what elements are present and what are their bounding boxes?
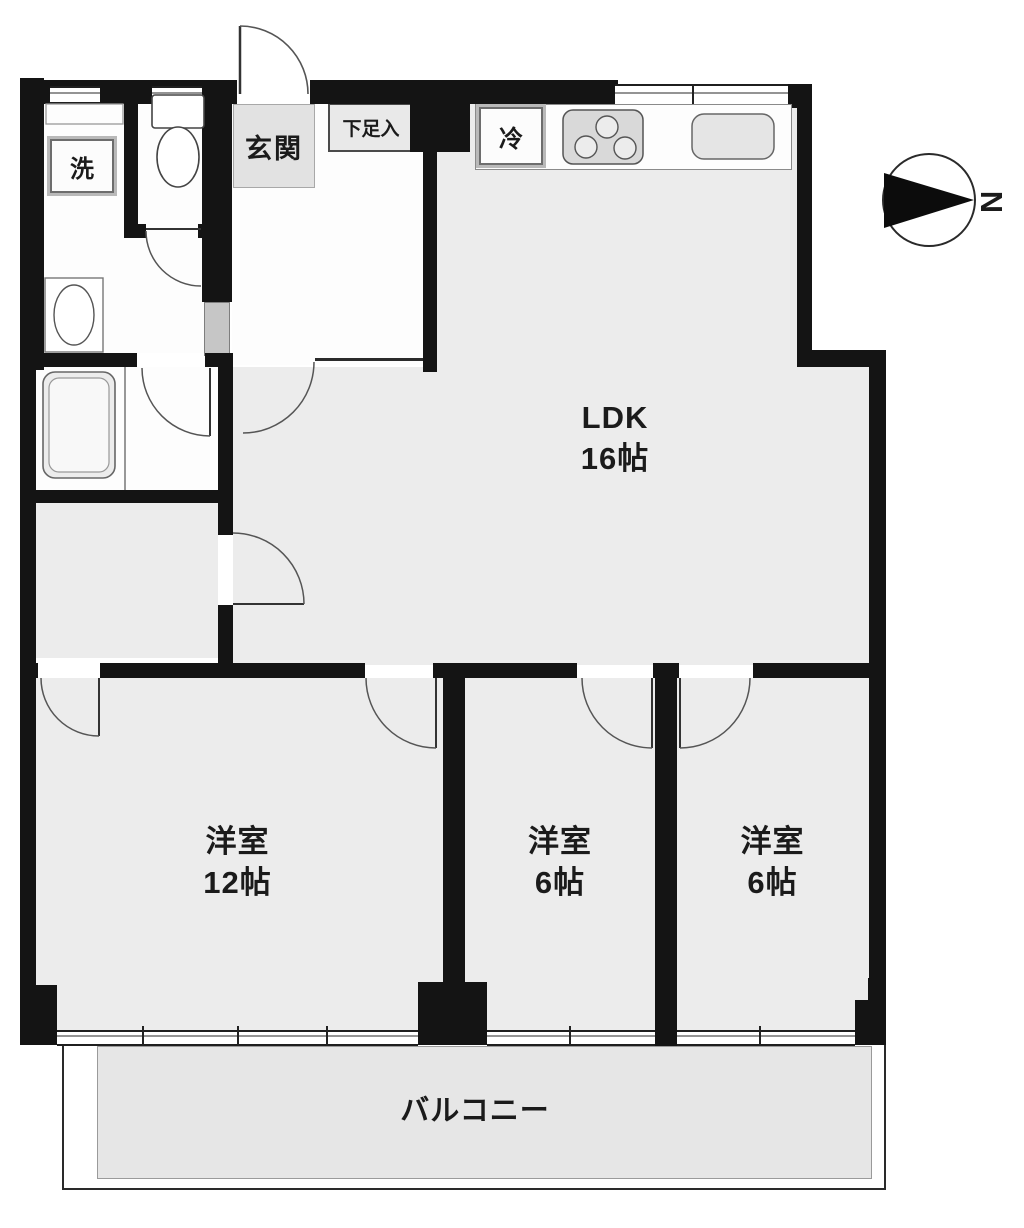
ldk-name: LDK bbox=[582, 400, 649, 435]
bedroom-6-right-label: 洋室 6帖 bbox=[685, 822, 860, 904]
bathroom-door-swing bbox=[142, 368, 210, 436]
bedroom-6-center-door-swing bbox=[582, 678, 652, 748]
ldk-label: LDK 16帖 bbox=[520, 398, 710, 480]
bedroom-6-right-name: 洋室 bbox=[741, 824, 805, 859]
plan-symbols bbox=[0, 0, 1024, 1228]
washroom-counter bbox=[46, 104, 123, 124]
balcony-label: バルコニー bbox=[320, 1092, 630, 1130]
toilet-door-swing bbox=[146, 229, 201, 286]
bedroom-6-center-label: 洋室 6帖 bbox=[475, 822, 645, 904]
hall-ldk-door-swing bbox=[243, 362, 314, 433]
compass-north-label: N bbox=[973, 191, 1009, 213]
entrance-door-swing bbox=[240, 26, 308, 94]
storage-ldk-door-swing bbox=[233, 533, 304, 604]
bedroom-12-label: 洋室 12帖 bbox=[140, 822, 335, 904]
bedroom-6-right-size: 6帖 bbox=[685, 863, 860, 904]
bedroom-12-right-door-swing bbox=[366, 678, 436, 748]
toilet-icon bbox=[152, 95, 204, 187]
ldk-size: 16帖 bbox=[520, 439, 710, 480]
bedroom-12-left-door-swing bbox=[41, 678, 99, 736]
compass-icon bbox=[883, 154, 975, 246]
bedroom-6-right-door-swing bbox=[680, 678, 750, 748]
floor-plan: 玄関 下足入 洗 bbox=[0, 0, 1024, 1228]
bathtub-icon bbox=[43, 367, 125, 490]
kitchen-sink-icon bbox=[692, 114, 774, 159]
balcony-name: バルコニー bbox=[400, 1095, 549, 1127]
bedroom-12-name: 洋室 bbox=[206, 824, 270, 859]
bedroom-6-center-name: 洋室 bbox=[528, 824, 592, 859]
bedroom-12-size: 12帖 bbox=[140, 863, 335, 904]
washbasin-icon bbox=[45, 278, 103, 352]
bedroom-6-center-size: 6帖 bbox=[475, 863, 645, 904]
stove-icon bbox=[563, 110, 643, 164]
